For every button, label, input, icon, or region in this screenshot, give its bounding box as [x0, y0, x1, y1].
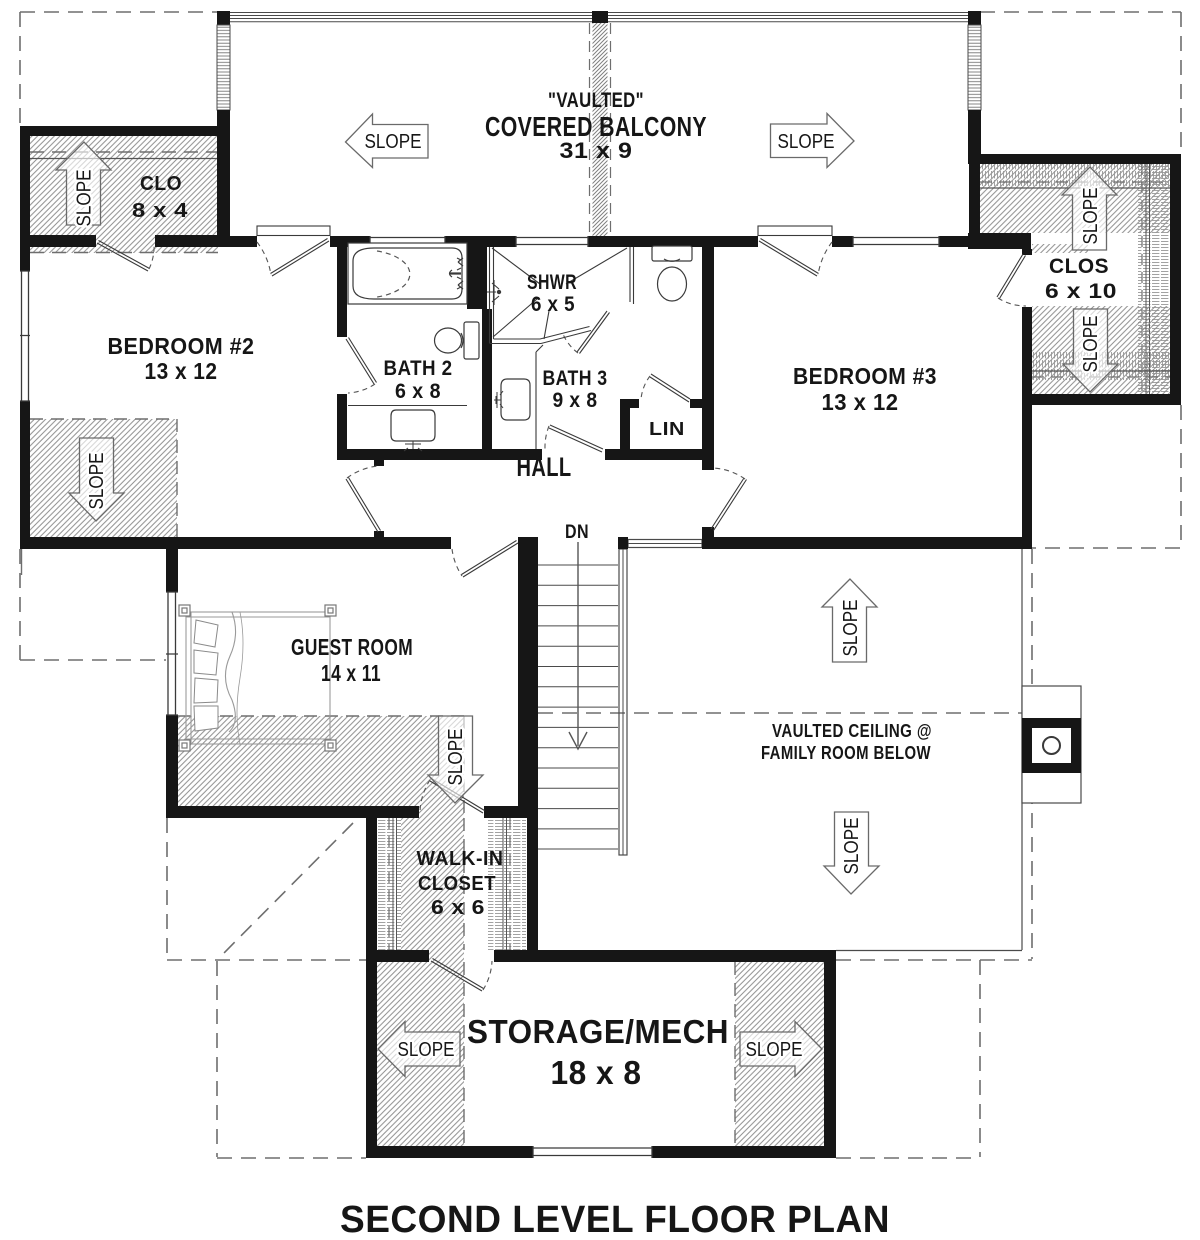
svg-text:13 x 12: 13 x 12	[822, 389, 899, 415]
svg-text:6 x 5: 6 x 5	[531, 293, 575, 316]
svg-text:SLOPE: SLOPE	[746, 1039, 803, 1061]
svg-text:SLOPE: SLOPE	[365, 131, 422, 153]
svg-text:WALK-IN: WALK-IN	[417, 848, 504, 870]
svg-text:SLOPE: SLOPE	[445, 729, 467, 786]
svg-text:6 x 6: 6 x 6	[431, 897, 485, 919]
svg-text:6 x 10: 6 x 10	[1045, 280, 1117, 303]
svg-text:8 x 4: 8 x 4	[132, 200, 188, 222]
svg-text:13 x 12: 13 x 12	[145, 358, 218, 384]
svg-text:SLOPE: SLOPE	[840, 600, 862, 657]
svg-text:CLO: CLO	[140, 173, 182, 195]
svg-text:6 x 8: 6 x 8	[395, 380, 441, 403]
svg-text:BATH 3: BATH 3	[543, 367, 608, 390]
svg-text:LIN: LIN	[649, 419, 685, 439]
svg-text:SLOPE: SLOPE	[1080, 316, 1102, 373]
svg-text:STORAGE/MECH: STORAGE/MECH	[467, 1013, 729, 1050]
svg-text:CLOS: CLOS	[1049, 255, 1109, 278]
svg-text:SLOPE: SLOPE	[778, 131, 835, 153]
svg-text:SLOPE: SLOPE	[841, 818, 863, 875]
svg-text:SHWR: SHWR	[527, 271, 577, 294]
svg-text:VAULTED CEILING @: VAULTED CEILING @	[772, 721, 932, 741]
svg-text:GUEST ROOM: GUEST ROOM	[291, 634, 413, 660]
svg-text:FAMILY ROOM BELOW: FAMILY ROOM BELOW	[761, 743, 931, 763]
svg-text:"VAULTED": "VAULTED"	[548, 89, 644, 112]
svg-text:31 x 9: 31 x 9	[560, 138, 633, 163]
svg-text:CLOSET: CLOSET	[418, 873, 496, 895]
svg-text:18 x 8: 18 x 8	[551, 1054, 642, 1091]
svg-text:BEDROOM #2: BEDROOM #2	[108, 333, 255, 359]
svg-text:HALL: HALL	[517, 452, 572, 482]
svg-text:14 x 11: 14 x 11	[321, 660, 381, 686]
svg-text:SLOPE: SLOPE	[398, 1039, 455, 1061]
svg-text:9 x 8: 9 x 8	[553, 389, 598, 412]
svg-text:SECOND LEVEL FLOOR PLAN: SECOND LEVEL FLOOR PLAN	[340, 1199, 890, 1240]
svg-text:SLOPE: SLOPE	[74, 170, 96, 227]
svg-text:SLOPE: SLOPE	[86, 453, 108, 510]
svg-text:BEDROOM #3: BEDROOM #3	[793, 363, 937, 389]
svg-text:DN: DN	[565, 522, 589, 543]
svg-text:BATH 2: BATH 2	[384, 357, 453, 380]
svg-text:SLOPE: SLOPE	[1080, 188, 1102, 245]
